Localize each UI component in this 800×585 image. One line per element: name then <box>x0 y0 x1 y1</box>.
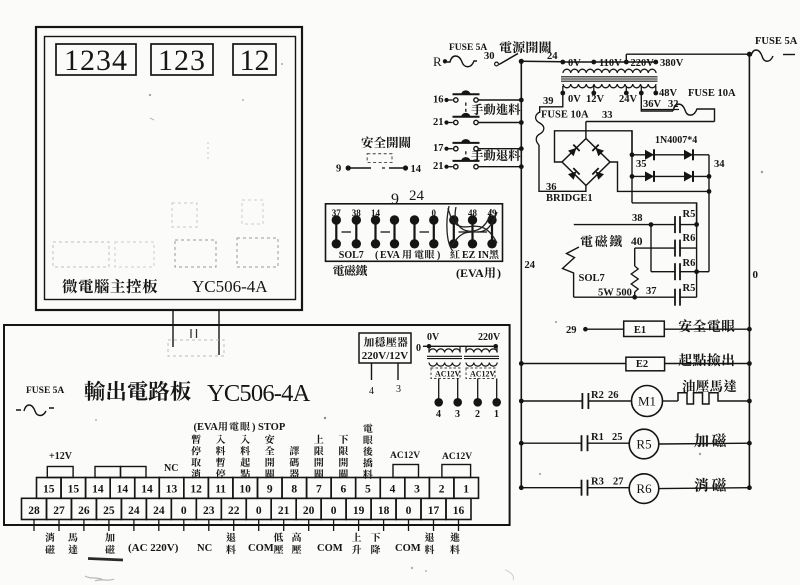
svg-text:39: 39 <box>543 96 554 107</box>
svg-text:14: 14 <box>117 484 129 496</box>
svg-text:110V: 110V <box>599 58 622 69</box>
svg-text:15: 15 <box>68 484 80 496</box>
svg-text:EZ IN: EZ IN <box>462 250 490 261</box>
svg-text:9: 9 <box>336 164 341 175</box>
svg-text:AC12V: AC12V <box>442 452 472 462</box>
svg-text:FUSE 5A: FUSE 5A <box>755 36 798 47</box>
svg-text:E2: E2 <box>636 359 648 370</box>
svg-text:FUSE 5A: FUSE 5A <box>26 386 64 396</box>
svg-text:14: 14 <box>411 164 422 175</box>
svg-text:15: 15 <box>43 484 55 496</box>
svg-text:24: 24 <box>128 505 140 517</box>
svg-text:STOP: STOP <box>258 422 286 433</box>
svg-text:EVA: EVA <box>380 250 401 261</box>
svg-text:R6: R6 <box>636 481 652 496</box>
svg-text:20: 20 <box>303 505 315 517</box>
svg-text:+12V: +12V <box>49 451 73 462</box>
svg-text:4: 4 <box>369 386 374 397</box>
svg-text:NC: NC <box>164 463 178 474</box>
svg-text:SOL7: SOL7 <box>339 250 364 261</box>
svg-text:R1: R1 <box>591 432 604 443</box>
svg-text:24V: 24V <box>619 94 638 105</box>
svg-text:25: 25 <box>612 432 623 443</box>
svg-text:2: 2 <box>475 409 480 420</box>
svg-text:(EVA: (EVA <box>194 422 219 433</box>
svg-text:24: 24 <box>153 505 165 517</box>
svg-text:35: 35 <box>636 159 647 170</box>
svg-text:16: 16 <box>433 95 444 106</box>
svg-text:21: 21 <box>278 505 290 517</box>
svg-text:4: 4 <box>436 409 441 420</box>
svg-text:0V: 0V <box>568 58 581 69</box>
svg-text:5W 500: 5W 500 <box>598 288 632 299</box>
svg-text:0: 0 <box>331 505 337 517</box>
svg-text:24: 24 <box>525 260 536 271</box>
svg-text:37: 37 <box>646 286 657 297</box>
svg-text:24: 24 <box>547 51 558 62</box>
svg-text:3: 3 <box>414 484 420 496</box>
svg-text:5: 5 <box>365 484 371 496</box>
svg-text:380V: 380V <box>660 58 684 69</box>
svg-text:R: R <box>433 54 442 69</box>
svg-text:33: 33 <box>602 110 613 121</box>
svg-text:0: 0 <box>256 505 262 517</box>
svg-text:12V: 12V <box>586 94 605 105</box>
svg-text:21: 21 <box>433 161 444 172</box>
svg-text:220V/12V: 220V/12V <box>362 350 409 362</box>
svg-text:0: 0 <box>181 505 187 517</box>
svg-text:21: 21 <box>433 117 444 128</box>
svg-text:26: 26 <box>78 505 90 517</box>
svg-text:36V: 36V <box>643 99 662 110</box>
svg-text:11: 11 <box>215 484 226 496</box>
svg-text:220V: 220V <box>478 332 501 343</box>
svg-text:7: 7 <box>316 484 322 496</box>
svg-text:220V: 220V <box>631 58 655 69</box>
svg-text:14: 14 <box>141 484 153 496</box>
svg-text:FUSE 5A: FUSE 5A <box>449 43 487 53</box>
svg-text:26: 26 <box>608 390 619 401</box>
svg-text:COM: COM <box>317 543 343 554</box>
svg-text:12: 12 <box>190 484 202 496</box>
svg-text:): ) <box>437 250 440 261</box>
svg-text:1: 1 <box>494 409 499 420</box>
svg-text:0: 0 <box>406 505 412 517</box>
svg-text:28: 28 <box>28 505 40 517</box>
svg-text:25: 25 <box>103 505 115 517</box>
svg-text:1: 1 <box>463 484 469 496</box>
svg-text:SOL7: SOL7 <box>579 273 605 284</box>
svg-text:17: 17 <box>433 143 444 154</box>
svg-text:AC12V: AC12V <box>435 370 461 379</box>
svg-text:R6: R6 <box>683 233 696 244</box>
svg-text:R6: R6 <box>683 258 696 269</box>
svg-text:NC: NC <box>197 543 212 554</box>
svg-text:0V: 0V <box>568 94 581 105</box>
svg-text:34: 34 <box>714 159 725 170</box>
svg-text:14: 14 <box>92 484 104 496</box>
svg-text:38: 38 <box>632 213 643 224</box>
svg-text:0: 0 <box>753 269 759 281</box>
svg-text:2: 2 <box>439 484 445 496</box>
svg-text:3: 3 <box>455 409 460 420</box>
svg-text:R5: R5 <box>683 209 696 220</box>
svg-text:8: 8 <box>291 484 297 496</box>
svg-text:29: 29 <box>566 325 577 336</box>
svg-text:COM: COM <box>395 543 421 554</box>
svg-text:18: 18 <box>378 505 390 517</box>
svg-text:9: 9 <box>391 191 399 208</box>
svg-text:R2: R2 <box>591 390 604 401</box>
svg-text:FUSE 10A: FUSE 10A <box>688 88 736 99</box>
svg-text:10: 10 <box>239 484 251 496</box>
svg-text:4: 4 <box>390 484 396 496</box>
svg-text:): ) <box>497 266 501 280</box>
svg-text:R3: R3 <box>591 477 604 488</box>
svg-text:(EVA: (EVA <box>456 266 484 280</box>
svg-text:13: 13 <box>166 484 178 496</box>
svg-text:AC12V: AC12V <box>390 451 420 461</box>
svg-text:36: 36 <box>546 182 557 193</box>
svg-text:3: 3 <box>396 384 401 395</box>
svg-text:COM: COM <box>248 543 274 554</box>
svg-text:E1: E1 <box>634 325 646 336</box>
svg-text:12: 12 <box>240 44 270 77</box>
svg-text:24: 24 <box>409 188 425 204</box>
svg-text:): ) <box>252 422 256 433</box>
svg-text:48V: 48V <box>659 88 678 99</box>
svg-text:BRIDGE1: BRIDGE1 <box>546 193 593 204</box>
svg-text:FUSE 10A: FUSE 10A <box>541 110 589 121</box>
svg-text:123: 123 <box>158 44 206 77</box>
svg-text:1234: 1234 <box>64 44 128 77</box>
svg-text:1N4007*4: 1N4007*4 <box>655 135 697 146</box>
svg-text:0V: 0V <box>427 332 440 343</box>
svg-text:YC506-4A: YC506-4A <box>192 277 268 296</box>
svg-text:(AC 220V): (AC 220V) <box>128 542 179 554</box>
svg-text:0: 0 <box>416 343 421 354</box>
svg-text:AC12V: AC12V <box>470 370 496 379</box>
svg-text:30: 30 <box>484 51 495 62</box>
svg-text:19: 19 <box>353 505 365 517</box>
svg-text:23: 23 <box>203 505 215 517</box>
svg-text:22: 22 <box>228 505 240 517</box>
svg-text:R5: R5 <box>683 283 696 294</box>
svg-text:YC506-4A: YC506-4A <box>207 380 311 407</box>
svg-text:16: 16 <box>453 505 465 517</box>
svg-text:17: 17 <box>428 505 440 517</box>
svg-text:6: 6 <box>341 484 347 496</box>
svg-text:M1: M1 <box>638 394 656 409</box>
svg-text:R5: R5 <box>636 437 651 452</box>
svg-text:27: 27 <box>53 505 65 517</box>
svg-text:9: 9 <box>267 484 273 496</box>
svg-text:27: 27 <box>613 477 624 488</box>
svg-text:40: 40 <box>631 236 643 248</box>
